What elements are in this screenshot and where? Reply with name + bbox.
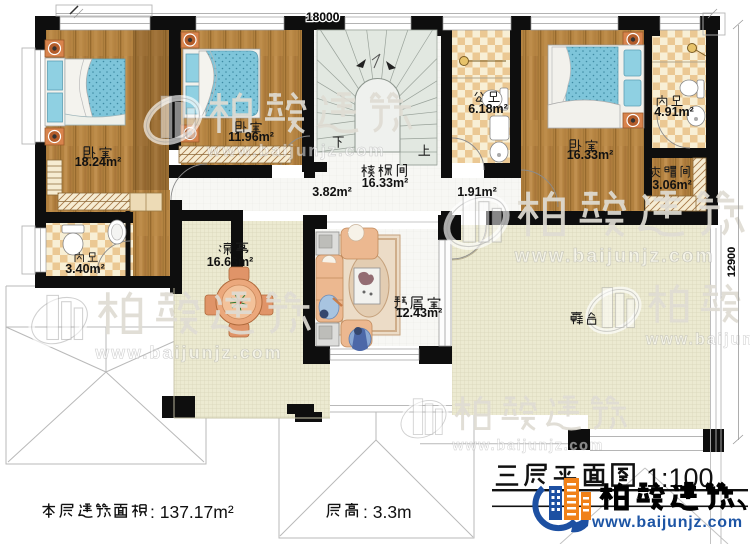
svg-text:3.82m²: 3.82m² bbox=[312, 185, 352, 199]
svg-text:12.43m²: 12.43m² bbox=[396, 306, 443, 320]
svg-text:16.33m²: 16.33m² bbox=[362, 176, 409, 190]
svg-text:: 3.3m: : 3.3m bbox=[363, 502, 412, 522]
svg-text:12900: 12900 bbox=[726, 247, 738, 278]
svg-text:6.18m²: 6.18m² bbox=[468, 102, 508, 116]
svg-text:18000: 18000 bbox=[306, 10, 340, 24]
svg-text:3.06m²: 3.06m² bbox=[652, 178, 692, 192]
svg-text:18.24m²: 18.24m² bbox=[75, 155, 122, 169]
svg-text:www.baijunjz.com: www.baijunjz.com bbox=[591, 514, 743, 531]
svg-text:: 137.17m²: : 137.17m² bbox=[150, 502, 234, 522]
svg-text:3.40m²: 3.40m² bbox=[65, 262, 105, 276]
svg-text:11.96m²: 11.96m² bbox=[228, 130, 274, 144]
svg-text:1.91m²: 1.91m² bbox=[457, 185, 497, 199]
svg-text:16.33m²: 16.33m² bbox=[567, 148, 614, 162]
svg-text:4.91m²: 4.91m² bbox=[654, 105, 694, 119]
svg-text:16.66m²: 16.66m² bbox=[207, 255, 254, 269]
